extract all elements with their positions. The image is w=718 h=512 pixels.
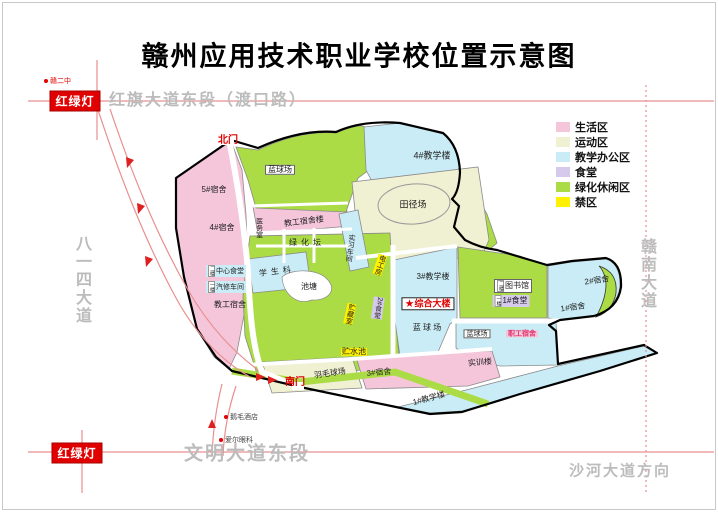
page-title: 赣州应用技术职业学校位置示意图: [142, 35, 577, 74]
basketball-court-se: 蓝球场: [464, 329, 491, 338]
teaching-building-3-label: 3#教学楼: [417, 272, 450, 281]
north-gate: 北门: [218, 136, 238, 147]
dorm-4: 4#宿舍: [210, 224, 235, 232]
legend-row-legend-teaching: 教学办公区: [556, 151, 630, 162]
dorm-5: 5#宿舍: [202, 186, 227, 194]
legend-row-legend-forbidden: 禁区: [556, 196, 630, 207]
canteen-2-label: 2#食堂: [373, 297, 383, 320]
basketball-court-se-label: 蓝球场: [467, 330, 488, 337]
staff-dorm-se: 职工宿舍: [506, 330, 538, 337]
landmark-aier-eye-label: 爱尔眼科: [225, 437, 253, 444]
training-building-label: 实训楼: [468, 357, 493, 368]
teaching-building-3: 3#教学楼: [417, 273, 450, 281]
main-building: ★综合大楼: [401, 297, 454, 310]
canteen-1-floor-tag: 一楼: [495, 295, 502, 307]
basketball-court-north: 蓝球场: [265, 165, 295, 175]
pond-label: 池塘: [301, 282, 317, 291]
map-legend: 生活区运动区教学办公区食堂绿化休闲区禁区: [556, 121, 630, 211]
central-canteen: 二楼中心食堂: [206, 265, 246, 277]
basketball-court-central: 蓝 球 场: [413, 324, 441, 332]
dorm-3-label: 3#宿舍: [366, 367, 392, 378]
canteen-1: 一楼1#食堂: [493, 295, 530, 307]
legend-forbidden-label: 禁区: [575, 194, 597, 210]
map-pin-dot-icon: [219, 438, 223, 442]
dorm-4-label: 4#宿舍: [210, 223, 235, 232]
clinic: 医务室: [255, 218, 262, 239]
legend-row-legend-sports: 运动区: [556, 136, 630, 147]
south-gate-label: 南门: [285, 377, 305, 388]
legend-row-legend-living: 生活区: [556, 121, 630, 132]
water-pool: 贮水池: [341, 348, 367, 356]
canteen-1-label: 1#食堂: [503, 296, 528, 305]
south-gate: 南门: [285, 378, 305, 389]
landmark-aier-eye: 爱尔眼科: [219, 435, 253, 445]
legend-living-swatch: [556, 122, 570, 132]
staff-dorm-se-label: 职工宿舍: [508, 330, 536, 337]
library-label: 图书馆: [505, 281, 529, 290]
central-canteen-label: 中心食堂: [216, 268, 244, 275]
teaching-building-4-label: 4#教学楼: [413, 150, 450, 160]
legend-green-swatch: [556, 182, 570, 192]
region-green-north: [236, 126, 372, 212]
clinic-label: 医务室: [256, 218, 263, 239]
legend-living-label: 生活区: [575, 119, 608, 135]
road-hongqi-avenue: 红旗大道东段（渡口路）: [109, 86, 307, 110]
library: 二楼图书馆: [494, 279, 532, 293]
central-canteen-floor-tag: 二楼: [208, 265, 215, 277]
landmark-emao-hotel: 鹅毛酒店: [224, 412, 258, 422]
auto-repair-workshop-label: 汽修车间: [216, 284, 244, 291]
staff-dorm: 教工宿舍: [214, 301, 246, 309]
basketball-court-central-label: 蓝 球 场: [413, 323, 441, 332]
traffic-light-south: 红绿灯: [51, 443, 102, 464]
green-terrace: 绿化坛: [289, 239, 325, 247]
legend-sports-label: 运动区: [575, 134, 608, 150]
legend-teaching-label: 教学办公区: [575, 149, 630, 165]
landmark-emao-hotel-label: 鹅毛酒店: [230, 414, 258, 421]
auto-repair-workshop-floor-tag: 一楼: [208, 281, 215, 293]
auto-repair-workshop: 一楼汽修车间: [206, 281, 246, 293]
legend-row-legend-green: 绿化休闲区: [556, 181, 630, 192]
teaching-building-4: 4#教学楼: [413, 151, 450, 160]
map-pin-dot-icon: [224, 415, 228, 419]
legend-canteen-label: 食堂: [575, 164, 597, 180]
legend-teaching-swatch: [556, 152, 570, 162]
dorm-5-label: 5#宿舍: [202, 185, 227, 194]
road-gannan-avenue: 赣南大道: [634, 238, 658, 310]
track-field: 田径场: [399, 200, 426, 209]
green-terrace-label: 绿化坛: [289, 238, 325, 247]
north-gate-label: 北门: [218, 135, 238, 146]
legend-sports-swatch: [556, 137, 570, 147]
campus-map-svg: [0, 0, 718, 512]
basketball-court-north-label: 蓝球场: [268, 165, 292, 174]
road-shahe-direction: 沙河大道方向: [569, 460, 671, 481]
traffic-light-north: 红绿灯: [49, 91, 100, 112]
landmark-gan-no2-school-label: 赣二中: [50, 78, 71, 85]
location-map-page: 赣州应用技术职业学校位置示意图 生活区运动区教学办公区食堂绿化休闲区禁区 红旗大…: [0, 0, 718, 512]
library-floor-tag: 二楼: [497, 280, 504, 292]
legend-canteen-swatch: [556, 167, 570, 177]
star-icon: ★: [405, 298, 413, 308]
map-pin-dot-icon: [44, 79, 48, 83]
main-building-label: 综合大楼: [415, 298, 451, 308]
road-bayisi-avenue: 八一四大道: [69, 235, 93, 325]
track-field-label: 田径场: [399, 199, 426, 209]
landmark-gan-no2-school: 赣二中: [44, 76, 71, 86]
water-pool-label: 贮水池: [342, 347, 366, 356]
legend-green-label: 绿化休闲区: [575, 179, 630, 195]
legend-forbidden-swatch: [556, 197, 570, 207]
pond: 池塘: [301, 283, 317, 291]
staff-dorm-label: 教工宿舍: [214, 300, 246, 309]
legend-row-legend-canteen: 食堂: [556, 166, 630, 177]
